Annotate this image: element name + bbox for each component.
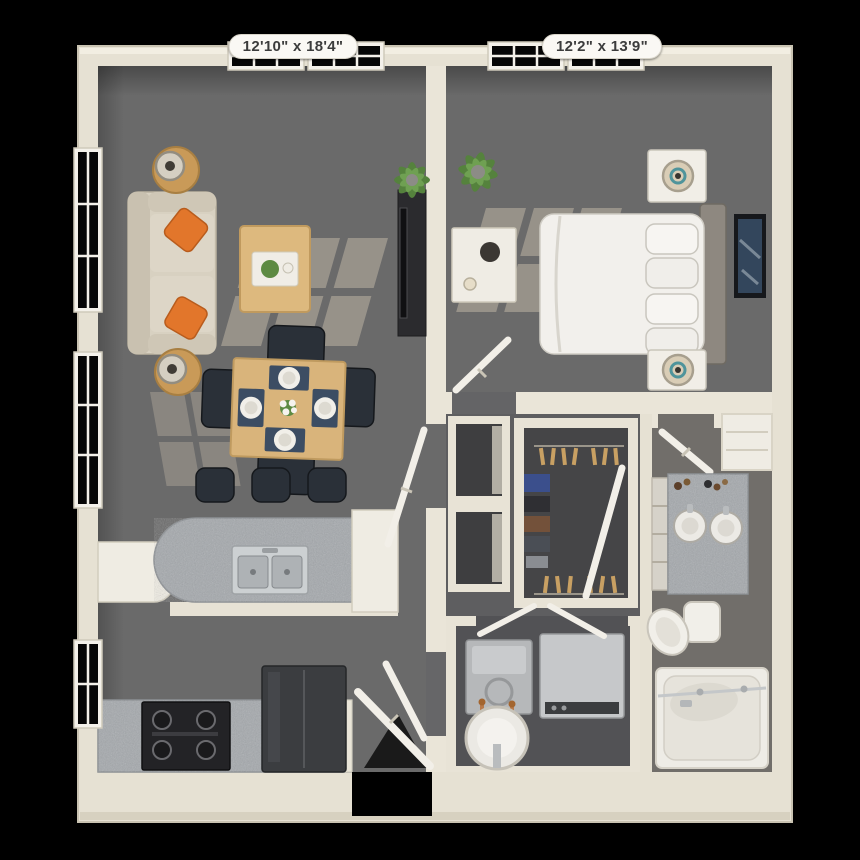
console-table	[452, 228, 516, 302]
floorplan-scene: 12'10" x 18'4" 12'2" x 13'9"	[0, 0, 860, 860]
side-table	[153, 147, 199, 193]
table-lamp	[158, 355, 186, 383]
washer	[466, 640, 532, 714]
bathroom-vanity	[652, 474, 748, 594]
bar-stool	[308, 468, 346, 502]
kitchen-island	[154, 510, 398, 616]
place-setting	[311, 389, 338, 428]
dimension-label-living-room: 12'10" x 18'4"	[229, 34, 358, 59]
window-living-left-2	[74, 352, 102, 508]
refrigerator	[262, 666, 346, 772]
potted-plant	[394, 162, 430, 198]
sphere-lamp	[480, 242, 500, 262]
dryer	[540, 634, 624, 718]
stove	[142, 702, 230, 770]
nightstand	[648, 150, 706, 202]
floorplan-drawing	[0, 0, 860, 860]
laundry-closet	[446, 606, 640, 772]
walk-in-closet	[514, 418, 638, 608]
bathtub	[656, 668, 768, 768]
island-sink	[232, 546, 308, 594]
linen-niche	[722, 414, 772, 470]
linen-closet	[452, 420, 506, 500]
coffee-table	[240, 226, 310, 312]
sofa	[128, 192, 216, 354]
window-kitchen-left	[74, 640, 102, 728]
candle	[464, 278, 476, 290]
tv-screen	[400, 208, 407, 318]
nightstand	[648, 350, 706, 390]
place-setting	[265, 427, 306, 452]
table-lamp	[663, 355, 693, 385]
wall-art	[734, 214, 766, 298]
bed	[540, 204, 726, 364]
side-table	[155, 349, 201, 395]
dimension-label-bedroom: 12'2" x 13'9"	[542, 34, 662, 59]
bar-stool	[196, 468, 234, 502]
bar-stool	[252, 468, 290, 502]
tv-console	[398, 190, 426, 336]
place-setting	[237, 388, 264, 427]
table-lamp	[156, 152, 184, 180]
place-setting	[269, 365, 310, 390]
linen-closet	[452, 508, 506, 588]
table-lamp	[663, 161, 693, 191]
window-living-left-1	[74, 148, 102, 312]
